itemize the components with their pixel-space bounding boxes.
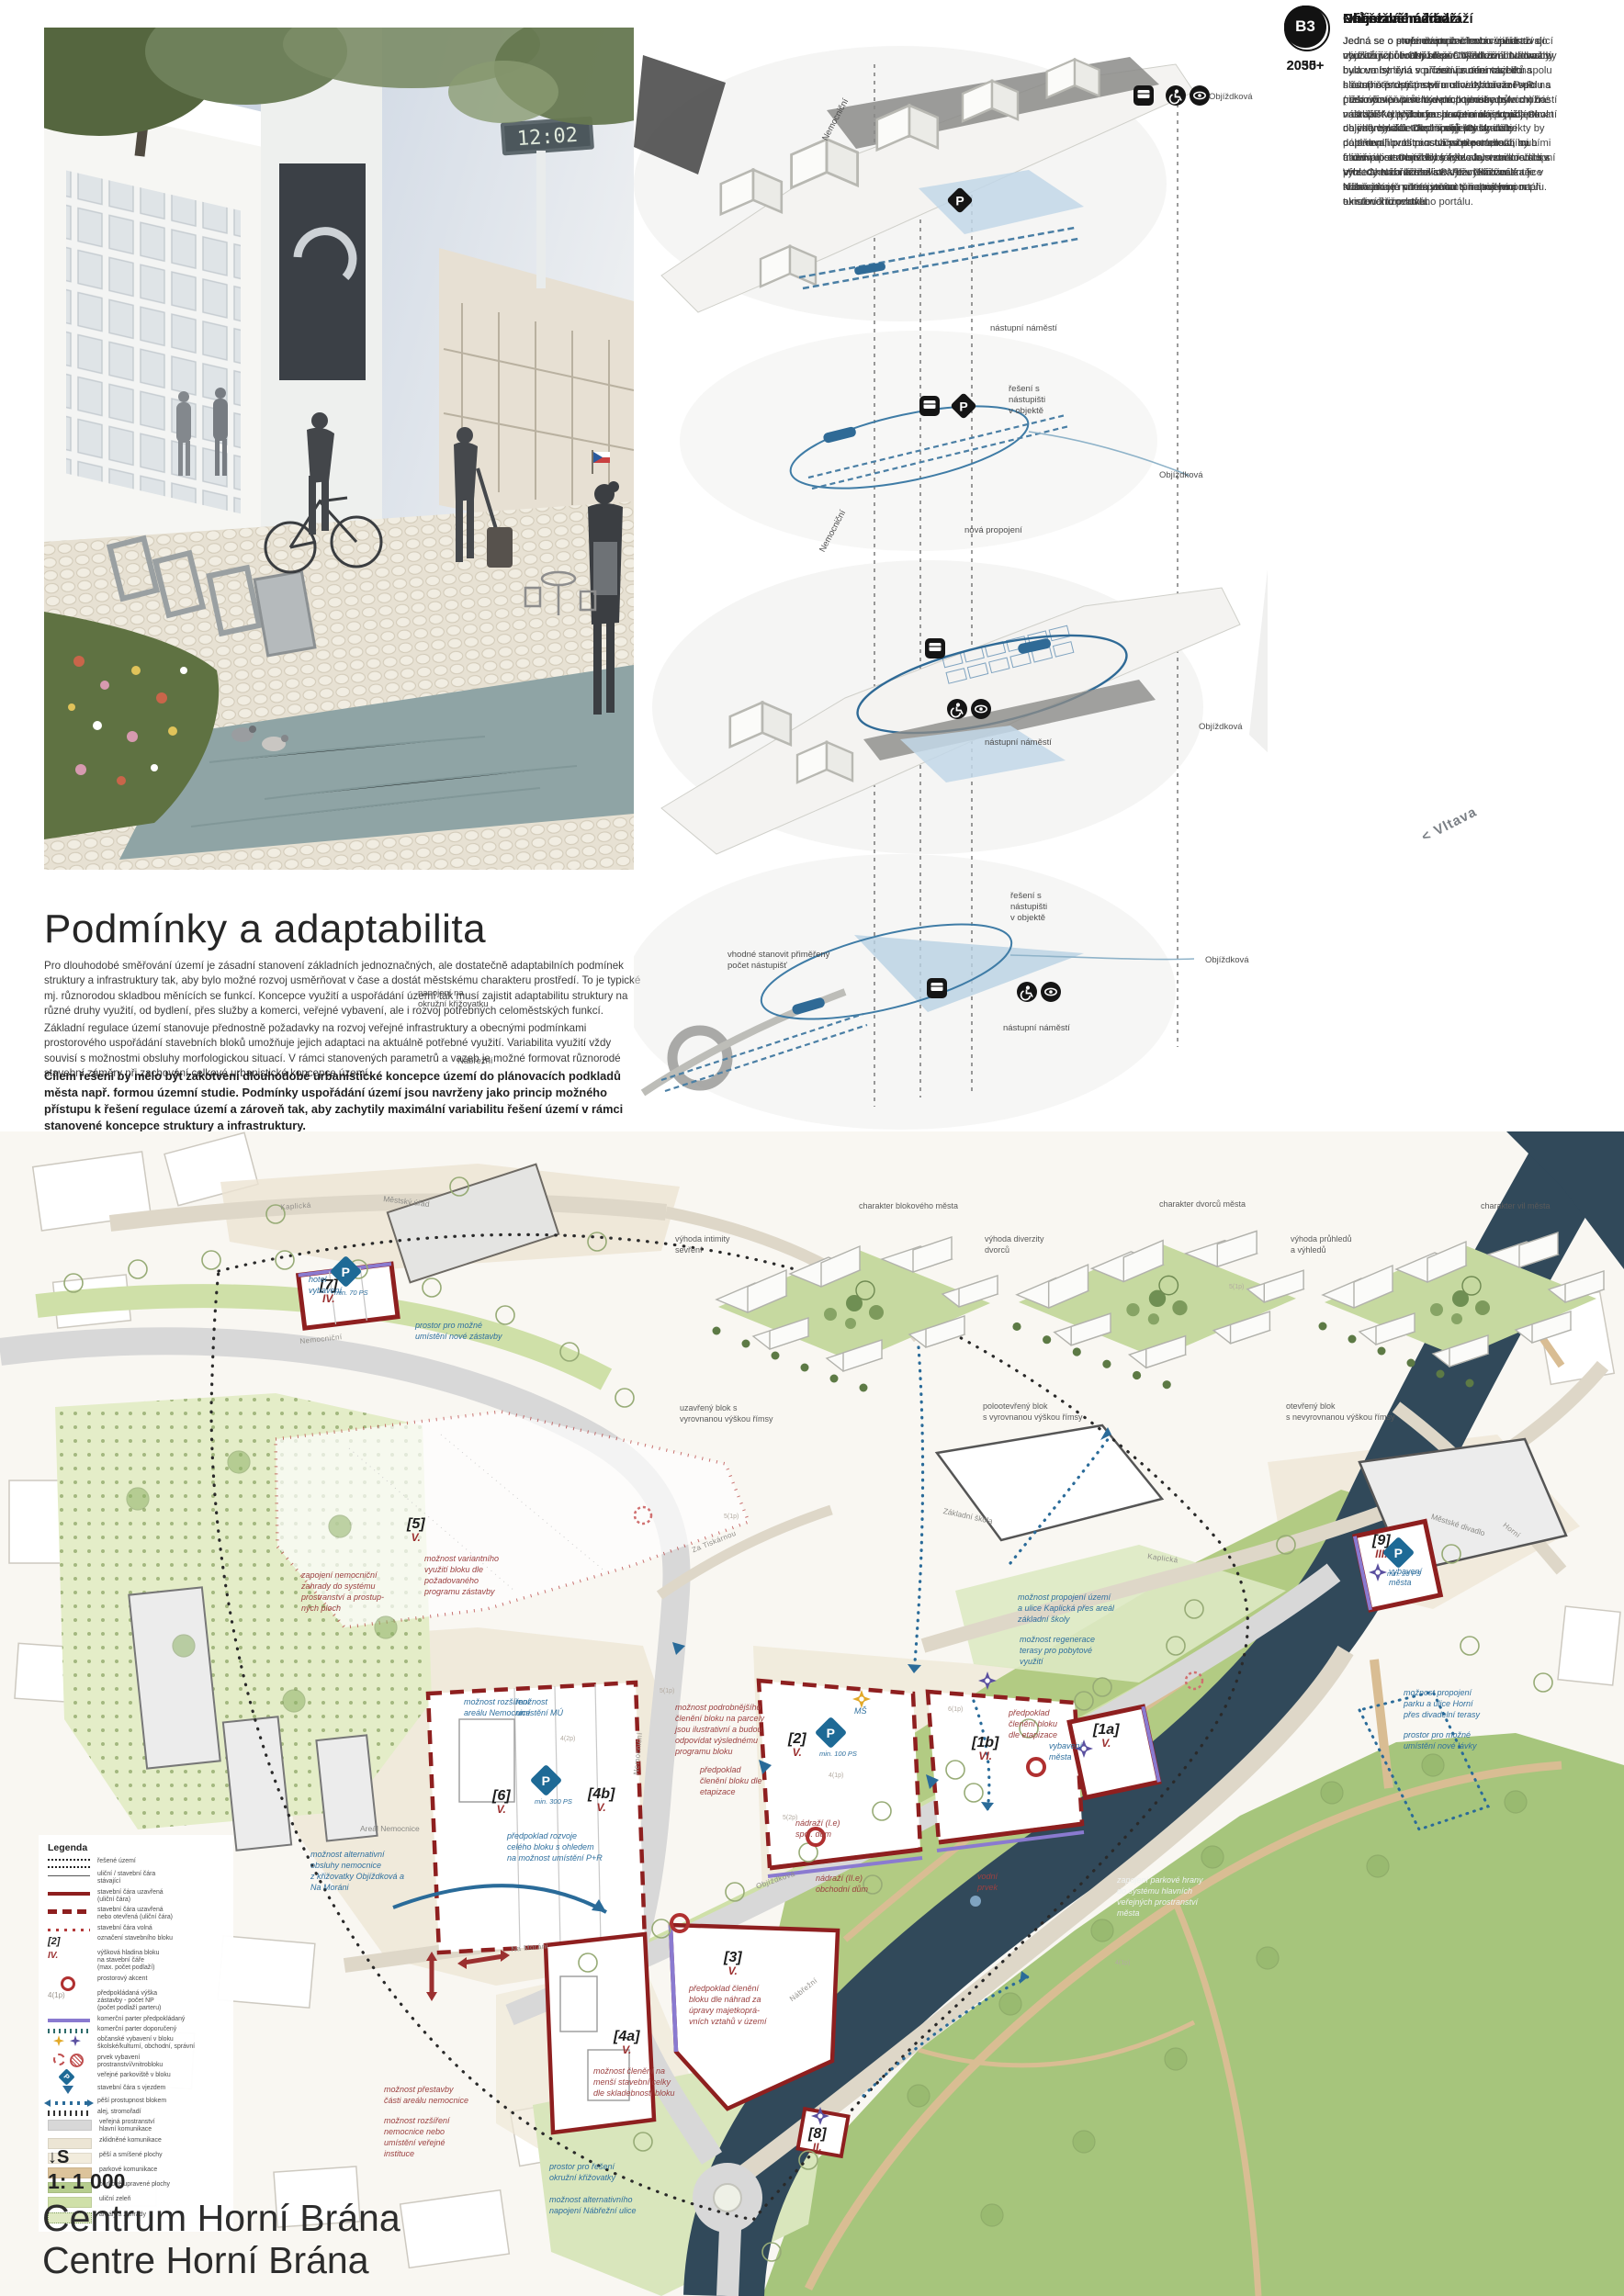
presentation-board: 12:02 bbox=[0, 0, 1624, 2296]
legend-item: občanské vybavení v bloku školské/kultur… bbox=[48, 2036, 226, 2051]
diagram-label: nástupní náměstí bbox=[990, 323, 1057, 334]
legend-swatch bbox=[48, 1859, 90, 1868]
map-scale: 1: 1 000 bbox=[48, 2169, 125, 2194]
legend-label: stavební čára s vjezdem bbox=[97, 2085, 165, 2092]
diagram-label: Nemocniční bbox=[818, 509, 849, 555]
diagram-label: nástupní náměstí bbox=[1003, 1023, 1070, 1034]
lot-height-code: 4(1p) bbox=[1115, 1960, 1130, 1966]
legend-label: veřejná prostranství hlavní komunikace bbox=[99, 2119, 155, 2133]
legend-swatch: IV. bbox=[48, 1951, 90, 1961]
legend-label: pěší prostupnost blokem bbox=[97, 2098, 166, 2105]
legend-label: stavební čára uzavřená (uliční čára) bbox=[97, 1889, 164, 1904]
legend-swatch bbox=[48, 1909, 90, 1914]
lot-height-code: 4(1p) bbox=[829, 1773, 843, 1779]
diagram-label: nástupní náměstí bbox=[985, 737, 1052, 748]
legend-label: předpokládaná výška zástavby - počet NP … bbox=[97, 1990, 161, 2012]
legend-swatch bbox=[48, 2073, 90, 2082]
diagram-label: Nemocniční bbox=[820, 97, 851, 143]
lot-height-code: 5(1p) bbox=[1229, 1284, 1244, 1290]
legend-label: řešené území bbox=[97, 1858, 136, 1865]
lot-code-layer: 5(1p)4(1p)5(2p)6(1p)4(1p)5(1p)4(2p)5(1p) bbox=[0, 1131, 1624, 2296]
legend-swatch bbox=[48, 1929, 90, 1931]
legend-title: Legenda bbox=[48, 1842, 226, 1853]
diagram-label: Objíždková bbox=[1159, 470, 1203, 481]
legend-item: prostorový akcent bbox=[48, 1975, 226, 1987]
legend-swatch bbox=[48, 2110, 90, 2116]
legend-item: veřejná prostranství hlavní komunikace bbox=[48, 2119, 226, 2133]
legend-swatch bbox=[48, 2037, 90, 2046]
legend-swatch bbox=[48, 1875, 90, 1876]
legend-swatch: 4(1p) bbox=[48, 1991, 90, 1999]
legend-swatch bbox=[48, 2019, 90, 2022]
legend-item: pěší a smíšené plochy bbox=[48, 2152, 226, 2164]
variant-text: Jedná se o stopu částečně nebo úplně vyu… bbox=[1343, 35, 1558, 210]
lot-height-code: 4(2p) bbox=[560, 1736, 575, 1742]
legend-label: prostorový akcent bbox=[97, 1975, 147, 1983]
diagram-label: Objíždková bbox=[1205, 955, 1249, 966]
legend-item: alej, stromořadí bbox=[48, 2109, 226, 2116]
map-title-czech: Centrum Horní Brána bbox=[42, 2197, 400, 2240]
legend-item: IV. výšková hladina bloku na stavební čá… bbox=[48, 1950, 226, 1972]
masterplan-map: charakter blokového městacharakter dvorc… bbox=[0, 1131, 1624, 2296]
legend-label: stavební čára volná bbox=[97, 1925, 152, 1932]
legend-item: prvek vybavení prostranství/vnitrobloku bbox=[48, 2054, 226, 2069]
legend-item: řešené území bbox=[48, 1858, 226, 1868]
diagram-label: Nábřežní bbox=[457, 1056, 493, 1067]
legend-swatch: [2] bbox=[48, 1936, 90, 1947]
north-indicator: ↓S bbox=[48, 2147, 69, 2168]
legend-label: pěší a smíšené plochy bbox=[99, 2152, 163, 2159]
diagram-label: Objíždková bbox=[1199, 722, 1243, 733]
legend-label: zklidněné komunikace bbox=[99, 2137, 162, 2144]
lot-height-code: 5(2p) bbox=[783, 1815, 797, 1821]
variant-title: Nábřežní nádraží bbox=[1343, 11, 1560, 27]
diagram-label: napojení na okružní křižovatku bbox=[418, 988, 489, 1010]
lot-height-code: 5(1p) bbox=[724, 1514, 739, 1520]
diagram-label: Objíždková bbox=[1209, 92, 1253, 103]
legend-item: [2] označení stavebního bloku bbox=[48, 1935, 226, 1947]
map-title-english: Centre Horní Brána bbox=[42, 2239, 369, 2282]
legend-label: uliční / stavební čára stávající bbox=[97, 1871, 155, 1885]
legend-item: stavební čára volná bbox=[48, 1925, 226, 1932]
legend-label: prvek vybavení prostranství/vnitrobloku bbox=[97, 2054, 163, 2069]
legend-label: občanské vybavení v bloku školské/kultur… bbox=[97, 2036, 195, 2051]
diagram-label: vhodné stanovit přiměřený počet nástupiš… bbox=[727, 950, 829, 972]
legend-item: komerční parter doporučený bbox=[48, 2026, 226, 2033]
legend-item: stavební čára uzavřená (uliční čára) bbox=[48, 1889, 226, 1904]
legend-label: označení stavebního bloku bbox=[97, 1935, 173, 1942]
legend-item: pěší prostupnost blokem bbox=[48, 2098, 226, 2105]
diagram-label: nová propojení bbox=[964, 525, 1022, 536]
legend-swatch bbox=[48, 1892, 90, 1896]
diagram-label: řešení s nástupišti v objektě bbox=[1010, 891, 1047, 924]
lot-height-code: 6(1p) bbox=[948, 1706, 963, 1713]
variant-year: 2035+ bbox=[1284, 59, 1326, 73]
legend-label: veřejné parkoviště v bloku bbox=[97, 2072, 171, 2079]
legend-swatch bbox=[48, 2120, 92, 2131]
legend-item: veřejné parkoviště v bloku bbox=[48, 2072, 226, 2082]
legend-swatch bbox=[48, 2101, 90, 2105]
legend-item: uliční / stavební čára stávající bbox=[48, 1871, 226, 1885]
legend-item: zklidněné komunikace bbox=[48, 2137, 226, 2149]
legend-swatch bbox=[48, 2055, 90, 2065]
legend-item: 4(1p) předpokládaná výška zástavby - poč… bbox=[48, 1990, 226, 2012]
legend-label: komerční parter předpokládaný bbox=[97, 2016, 185, 2023]
variant-badge: B3 bbox=[1284, 6, 1326, 48]
legend-swatch bbox=[48, 2086, 90, 2095]
legend-label: výšková hladina bloku na stavební čáře (… bbox=[97, 1950, 159, 1972]
legend-label: stavební čára uzavřená nebo otevřená (ul… bbox=[97, 1907, 173, 1921]
legend-swatch bbox=[48, 2029, 90, 2033]
variant-descriptions: B1 2050+ Uliční nádraží Jedná se o prefe… bbox=[1284, 0, 1560, 1131]
legend-item: stavební čára uzavřená nebo otevřená (ul… bbox=[48, 1907, 226, 1921]
legend-item: komerční parter předpokládaný bbox=[48, 2016, 226, 2023]
legend-item: stavební čára s vjezdem bbox=[48, 2085, 226, 2095]
legend-items: řešené území uliční / stavební čára stáv… bbox=[48, 1858, 226, 2223]
legend-swatch bbox=[48, 1976, 90, 1987]
legend-label: komerční parter doporučený bbox=[97, 2026, 176, 2033]
lot-height-code: 5(1p) bbox=[660, 1688, 674, 1694]
diagram-label: řešení s nástupišti v objektě bbox=[1009, 384, 1045, 417]
legend-label: alej, stromořadí bbox=[97, 2109, 141, 2116]
